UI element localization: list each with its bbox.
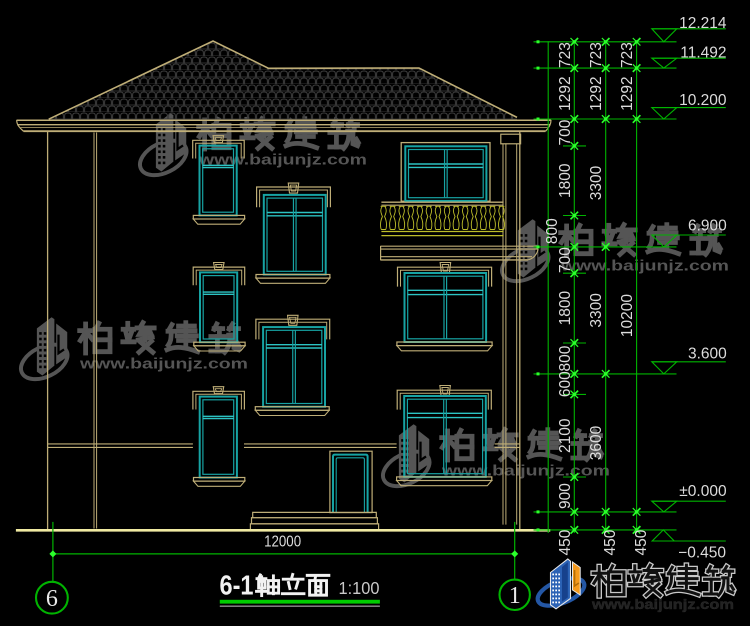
svg-text:800: 800 — [544, 218, 561, 244]
svg-text:−0.450: −0.450 — [678, 545, 726, 562]
svg-text:450: 450 — [557, 529, 574, 555]
svg-text:±0.000: ±0.000 — [679, 483, 727, 500]
svg-text:700: 700 — [557, 247, 574, 273]
svg-text:3.600: 3.600 — [688, 346, 727, 363]
svg-text:1: 1 — [509, 583, 521, 609]
svg-text:723: 723 — [619, 42, 636, 68]
svg-text:1292: 1292 — [588, 76, 605, 110]
svg-text:10.200: 10.200 — [679, 92, 727, 109]
svg-text:1292: 1292 — [619, 76, 636, 110]
svg-text:6.900: 6.900 — [688, 217, 727, 234]
svg-text:600: 600 — [557, 371, 574, 397]
svg-text:450: 450 — [602, 529, 619, 555]
svg-text:www.baijunjz.com: www.baijunjz.com — [560, 258, 729, 275]
svg-text:12.214: 12.214 — [679, 15, 727, 32]
svg-text:10200: 10200 — [619, 294, 636, 337]
svg-text:6-1: 6-1 — [220, 570, 254, 601]
svg-text:800: 800 — [557, 345, 574, 371]
svg-text:12000: 12000 — [264, 534, 301, 551]
svg-text:3300: 3300 — [588, 165, 605, 200]
svg-text:1292: 1292 — [557, 76, 574, 110]
svg-text:1800: 1800 — [557, 163, 574, 198]
svg-text:11.492: 11.492 — [680, 44, 726, 61]
svg-text:www.baijunjz.com: www.baijunjz.com — [79, 356, 248, 373]
svg-text:www.baijunjz.com: www.baijunjz.com — [591, 597, 734, 612]
svg-text:1800: 1800 — [557, 290, 574, 325]
svg-text:723: 723 — [588, 42, 605, 68]
svg-text:1:100: 1:100 — [339, 578, 380, 598]
svg-text:3600: 3600 — [588, 425, 605, 460]
svg-text:6: 6 — [46, 586, 58, 612]
svg-text:900: 900 — [557, 483, 574, 509]
svg-text:2100: 2100 — [557, 418, 574, 453]
svg-text:723: 723 — [557, 42, 574, 68]
svg-text:700: 700 — [557, 119, 574, 145]
svg-text:3300: 3300 — [588, 293, 605, 328]
svg-text:450: 450 — [633, 529, 650, 555]
